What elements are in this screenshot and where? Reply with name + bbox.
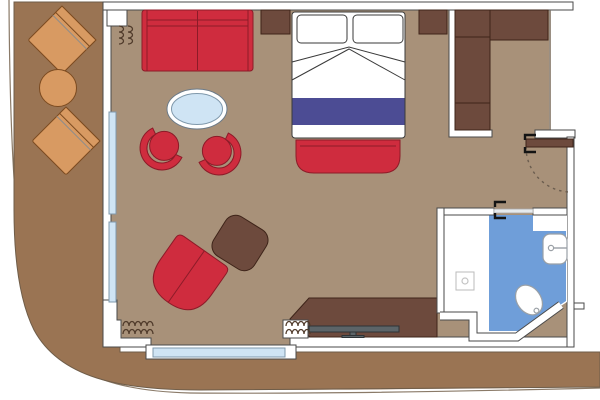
entry-door-leaf (526, 139, 573, 147)
right-wall-nub (574, 303, 584, 309)
desk (290, 298, 437, 338)
bathroom-top-wall-left (437, 208, 494, 215)
outside-area (551, 0, 600, 131)
balcony-round-table (40, 70, 77, 107)
pillow-right (353, 15, 403, 43)
bathroom-left-wall (437, 208, 444, 313)
bed-bench (296, 140, 400, 173)
balcony-window-left-upper (109, 112, 116, 214)
tv (309, 326, 399, 332)
right-wall (567, 137, 574, 347)
bathroom (437, 202, 567, 337)
wall-return-top-left (107, 8, 127, 26)
bathroom-top-wall-right (533, 208, 567, 215)
side-table (261, 10, 290, 34)
balcony-window-bottom (153, 348, 285, 357)
bathroom-door (494, 209, 533, 213)
bottom-wall (290, 337, 573, 347)
shower (456, 272, 474, 290)
double-bed (292, 12, 405, 138)
floor-plan (0, 0, 600, 400)
bed-runner (293, 98, 405, 125)
nightstand (419, 10, 447, 34)
sofa (142, 10, 253, 71)
pillow-left (297, 15, 347, 43)
top-wall (103, 2, 573, 10)
floor-plan-svg (0, 0, 600, 400)
oval-table (167, 89, 227, 129)
sink (543, 234, 567, 264)
balcony-window-left-lower (109, 222, 116, 302)
